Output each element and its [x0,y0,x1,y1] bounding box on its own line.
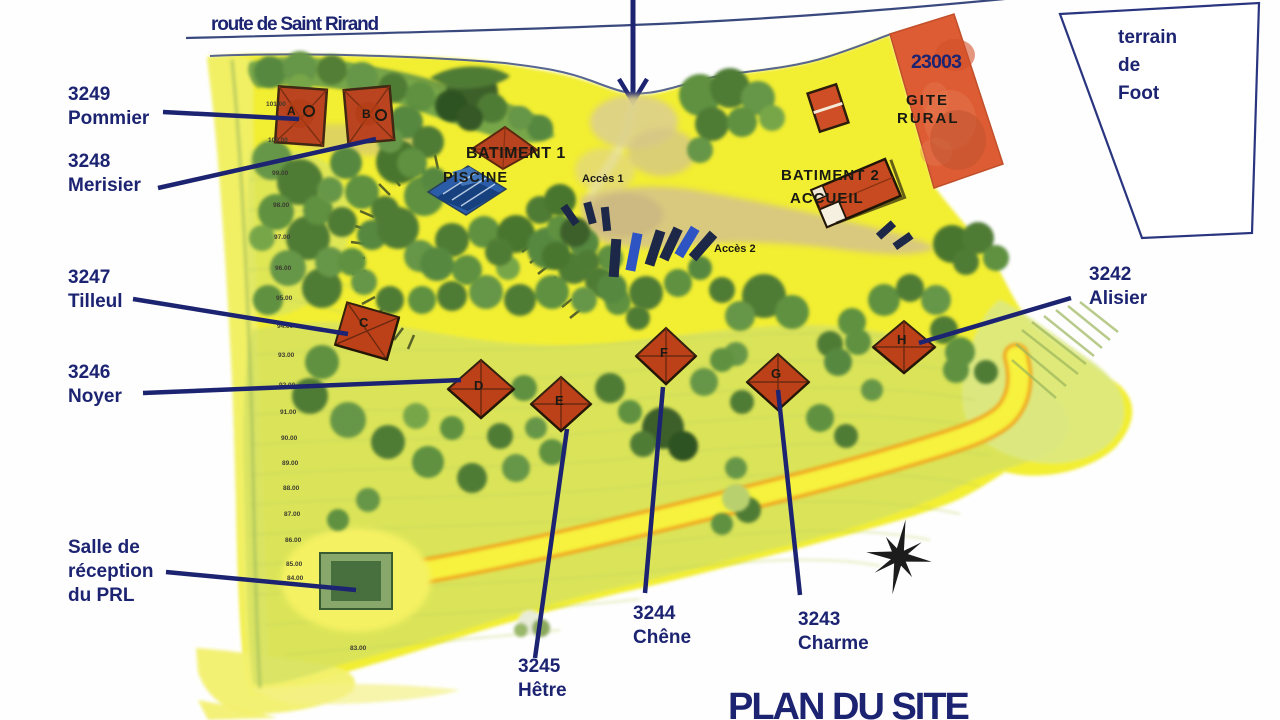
svg-text:23003: 23003 [911,51,962,73]
svg-text:PISCINE: PISCINE [443,170,508,186]
svg-text:89.00: 89.00 [282,460,299,467]
svg-text:E: E [555,393,564,408]
svg-text:90.00: 90.00 [281,435,298,442]
svg-text:A: A [287,104,296,118]
svg-text:98.00: 98.00 [273,202,290,209]
svg-text:87.00: 87.00 [284,511,301,518]
svg-text:85.00: 85.00 [286,561,303,568]
svg-text:B: B [362,107,371,121]
svg-text:PLAN DU SITE: PLAN DU SITE [728,686,969,720]
svg-text:RURAL: RURAL [897,110,960,127]
svg-text:C: C [359,315,369,330]
svg-text:route de Saint Rirand: route de Saint Rirand [211,14,379,35]
svg-text:Charme: Charme [798,633,869,654]
svg-text:84.00: 84.00 [287,575,304,582]
svg-text:3246: 3246 [68,362,110,383]
svg-text:Salle de: Salle de [68,537,140,558]
svg-text:100.00: 100.00 [268,137,288,144]
svg-text:BATIMENT 1: BATIMENT 1 [466,145,566,162]
svg-text:H: H [897,332,906,347]
svg-text:3248: 3248 [68,151,110,172]
svg-text:97.00: 97.00 [274,234,291,241]
svg-text:Tilleul: Tilleul [68,291,123,312]
svg-text:G: G [771,366,781,381]
svg-text:86.00: 86.00 [285,537,302,544]
svg-text:3245: 3245 [518,656,561,677]
svg-text:ACCUEIL: ACCUEIL [790,190,864,207]
svg-text:Foot: Foot [1118,83,1160,104]
svg-text:Hêtre: Hêtre [518,680,567,701]
svg-text:Chêne: Chêne [633,627,691,648]
svg-text:terrain: terrain [1118,27,1177,48]
svg-text:Merisier: Merisier [68,175,141,196]
svg-text:93.00: 93.00 [278,352,295,359]
svg-text:D: D [474,378,483,393]
svg-text:83.00: 83.00 [350,645,367,652]
svg-text:96.00: 96.00 [275,265,292,272]
svg-text:3242: 3242 [1089,264,1131,285]
svg-text:3247: 3247 [68,267,110,288]
svg-text:Accès 2: Accès 2 [714,243,756,255]
svg-text:Pommier: Pommier [68,108,150,129]
svg-text:GITE: GITE [906,92,949,109]
svg-text:95.00: 95.00 [276,295,293,302]
svg-text:3243: 3243 [798,609,840,630]
svg-text:3244: 3244 [633,603,676,624]
svg-text:88.00: 88.00 [283,485,300,492]
svg-text:F: F [660,345,668,360]
svg-text:réception: réception [68,561,154,582]
svg-text:99.00: 99.00 [272,170,289,177]
svg-text:91.00: 91.00 [280,409,297,416]
svg-text:de: de [1118,55,1140,76]
svg-text:Noyer: Noyer [68,386,122,407]
svg-text:Alisier: Alisier [1089,288,1148,309]
svg-text:Accès 1: Accès 1 [582,173,624,185]
svg-text:101.00: 101.00 [266,101,286,108]
svg-text:BATIMENT 2: BATIMENT 2 [781,167,880,184]
svg-text:3249: 3249 [68,84,110,105]
svg-text:du PRL: du PRL [68,585,135,606]
